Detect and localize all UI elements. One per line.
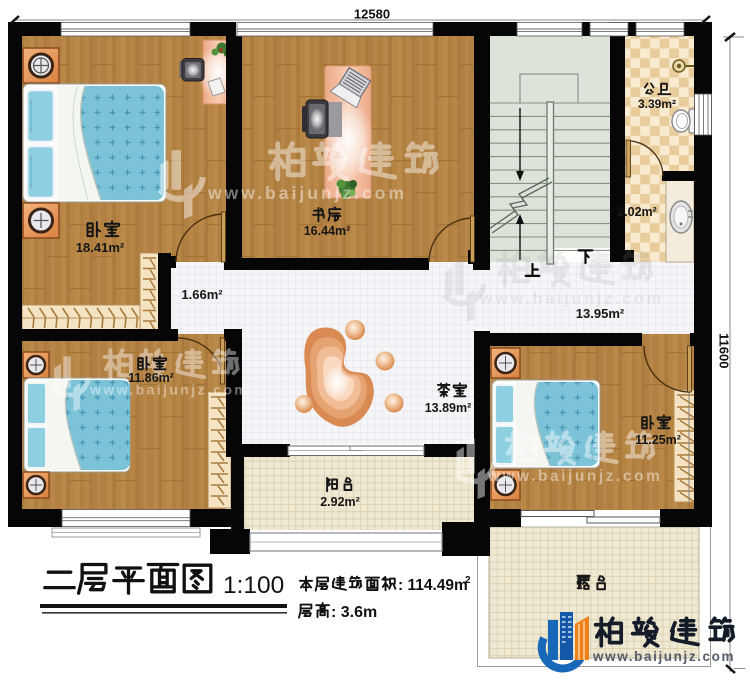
svg-text:11.25m²: 11.25m² bbox=[635, 433, 681, 447]
svg-text:13.95m²: 13.95m² bbox=[576, 306, 625, 321]
svg-text:18.41m²: 18.41m² bbox=[76, 240, 125, 255]
svg-text:: 3.6m: : 3.6m bbox=[331, 604, 377, 621]
svg-text:16.44m²: 16.44m² bbox=[304, 224, 351, 238]
svg-text:: 114.49m: : 114.49m bbox=[398, 577, 468, 594]
svg-text:3.39m²: 3.39m² bbox=[638, 97, 676, 111]
svg-text:www.baijunjz.com: www.baijunjz.com bbox=[592, 649, 735, 664]
svg-text:2.92m²: 2.92m² bbox=[320, 495, 360, 509]
svg-text:www.baijunjz.com: www.baijunjz.com bbox=[479, 289, 664, 307]
svg-text:12580: 12580 bbox=[354, 7, 390, 22]
svg-text:11600: 11600 bbox=[717, 333, 732, 368]
svg-text:2.02m²: 2.02m² bbox=[617, 205, 657, 219]
svg-text:www.baijunjz.com: www.baijunjz.com bbox=[487, 468, 662, 485]
svg-text:1:100: 1:100 bbox=[223, 572, 284, 599]
svg-text:www.baijunjz.com: www.baijunjz.com bbox=[207, 183, 407, 203]
svg-text:2: 2 bbox=[465, 575, 471, 586]
svg-text:11.86m²: 11.86m² bbox=[128, 371, 174, 385]
svg-text:13.89m²: 13.89m² bbox=[425, 401, 472, 415]
svg-text:1.66m²: 1.66m² bbox=[181, 287, 223, 302]
